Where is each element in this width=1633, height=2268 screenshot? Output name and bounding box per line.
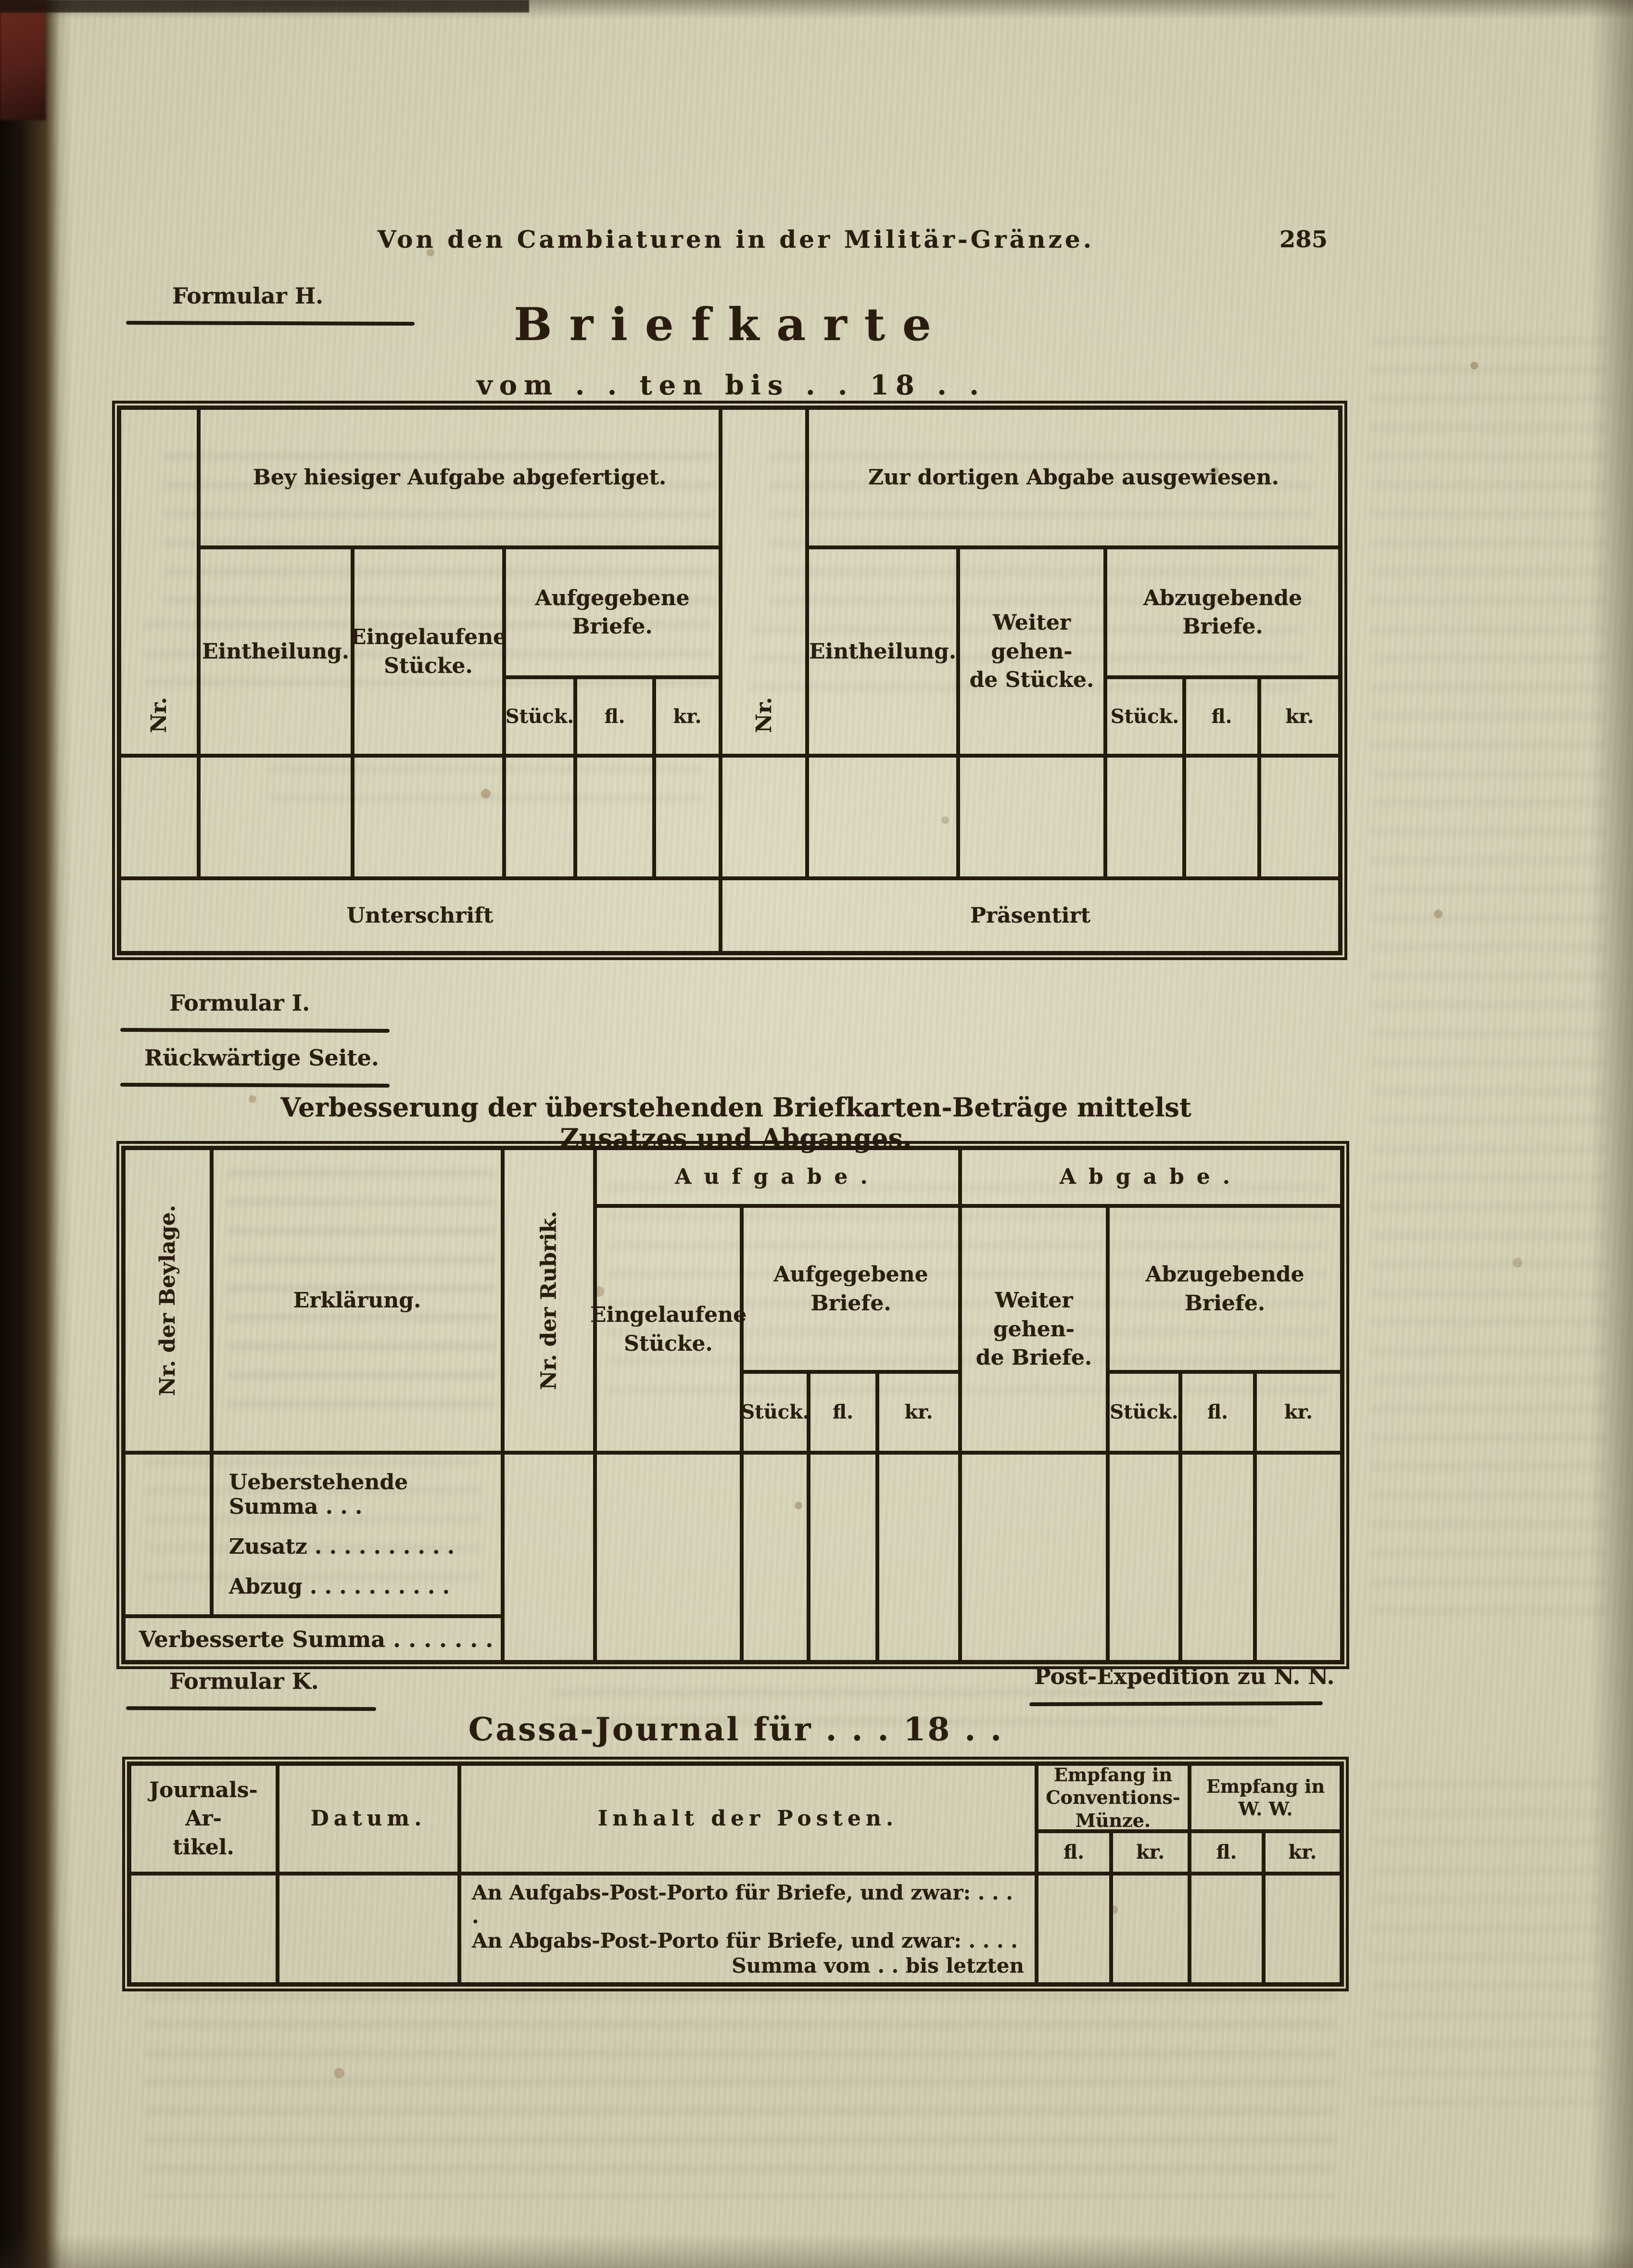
empty-cell (1186, 754, 1261, 876)
empty-cell (1110, 1614, 1182, 1660)
book-binding-edge (0, 0, 72, 2268)
group-header-aufgabe: Aufgabe. (597, 1150, 962, 1208)
subcol-stueck: Stück. (744, 1374, 810, 1451)
empty-cell (505, 1614, 597, 1660)
col-eingelaufene-stuecke: Eingelaufene Stücke. (354, 549, 506, 754)
subcol-stueck: Stück. (506, 679, 577, 754)
col-aufgegebene-briefe: Aufgegebene Briefe. (744, 1208, 962, 1374)
running-header: Von den Cambiaturen in der Militär-Gränz… (298, 225, 1174, 253)
empty-cell (1113, 1872, 1191, 1982)
col-weitergehende-briefe: Weiter gehen- de Briefe. (962, 1208, 1110, 1451)
scanned-book-page: Von den Cambiaturen in der Militär-Gränz… (0, 0, 1633, 2268)
col-weitergehende-stuecke: Weiter gehen- de Stücke. (960, 549, 1107, 754)
formular-i-label: Formular I. (169, 990, 310, 1016)
col-aufgegebene-briefe: Aufgegebene Briefe. (506, 549, 722, 679)
empty-cell (1261, 754, 1338, 876)
label-line: Münze. (1076, 1809, 1151, 1832)
empty-cell (126, 1451, 214, 1614)
col-nr-der-rubrik: Nr. der Rubrik. (505, 1150, 597, 1451)
group-header-abgabe: Abgabe. (962, 1150, 1340, 1208)
subcol-kr: kr. (1266, 1833, 1340, 1872)
briefkarte-title: Briefkarte (337, 298, 1126, 351)
post-expedition-underline (1029, 1701, 1323, 1706)
summen-rows: Ueberstehende Summa . . . Zusatz . . . .… (214, 1451, 505, 1614)
col-abzugebende-briefe: Abzugebende Briefe. (1107, 549, 1338, 679)
col-abzugebende-briefe: Abzugebende Briefe. (1110, 1208, 1340, 1374)
cassa-journal-title: Cassa-Journal für . . . 18 . . (332, 1711, 1140, 1748)
col-nr-right: Nr. (722, 410, 809, 754)
empty-cell (722, 754, 809, 876)
label-line: Empfang in (1054, 1763, 1172, 1787)
scan-top-shadow (0, 0, 1633, 19)
page-right-edge (1590, 0, 1633, 2268)
footer-unterschrift: Unterschrift (121, 876, 722, 951)
empty-cell (744, 1451, 810, 1614)
empty-cell (1107, 754, 1186, 876)
row-summa-vom: Summa vom . . bis letzten (732, 1954, 1024, 1977)
verbesserung-table: Nr. der Beylage. Erklärung. Nr. der Rubr… (116, 1141, 1349, 1669)
subcol-kr: kr. (879, 1374, 962, 1451)
empty-cell (577, 754, 656, 876)
col-eintheilung-right: Eintheilung. (809, 549, 960, 754)
footer-praesentirt: Präsentirt (722, 876, 1338, 951)
col-inhalt-der-posten: Inhalt der Posten. (461, 1766, 1038, 1872)
empty-cell (656, 754, 722, 876)
empty-cell (1182, 1451, 1257, 1614)
empty-cell (597, 1614, 744, 1660)
empty-cell (962, 1614, 1110, 1660)
col-empfang-ww: Empfang in W. W. (1191, 1766, 1340, 1833)
page-number: 285 (1279, 226, 1376, 253)
label-line: W. W. (1238, 1798, 1292, 1821)
label-line: de Briefe. (976, 1343, 1092, 1372)
empty-cell (1182, 1614, 1257, 1660)
empty-cell (597, 1451, 744, 1614)
bleedthrough-ghost (1371, 337, 1607, 1635)
label-line: Journals-Ar- (136, 1776, 271, 1833)
subcol-fl: fl. (810, 1374, 879, 1451)
empty-cell (1191, 1872, 1266, 1982)
empty-cell (1110, 1451, 1182, 1614)
row-verbesserte-summa: Verbesserte Summa . . . . . . . (126, 1614, 505, 1660)
formular-k-label: Formular K. (169, 1668, 319, 1694)
subcol-fl: fl. (1182, 1374, 1257, 1451)
col-journals-artikel: Journals-Ar- tikel. (131, 1766, 279, 1872)
subcol-kr: kr. (1113, 1833, 1191, 1872)
empty-cell (879, 1451, 962, 1614)
col-datum: Datum. (279, 1766, 461, 1872)
col-eingelaufene-stuecke: Eingelaufene Stücke. (597, 1208, 744, 1451)
empty-cell (960, 754, 1107, 876)
posten-rows: An Aufgabs-Post-Porto für Briefe, und zw… (461, 1872, 1038, 1982)
label-line: Weiter gehen- (965, 608, 1099, 666)
rueckwaertige-seite-label: Rückwärtige Seite. (144, 1045, 379, 1071)
empty-cell (131, 1872, 279, 1982)
empty-cell (810, 1614, 879, 1660)
subcol-fl: fl. (1186, 679, 1261, 754)
subcol-fl: fl. (577, 679, 656, 754)
col-empfang-conventions-muenze: Empfang in Conventions- Münze. (1038, 1766, 1191, 1833)
label-line: Conventions- (1046, 1786, 1180, 1809)
empty-cell (962, 1451, 1110, 1614)
empty-cell (201, 754, 354, 876)
col-nr-der-beylage: Nr. der Beylage. (126, 1150, 214, 1451)
subcol-fl: fl. (1191, 1833, 1266, 1872)
label-line: tikel. (173, 1833, 234, 1862)
row-ueberstehende-summa: Ueberstehende Summa . . . (229, 1470, 501, 1519)
empty-cell (1257, 1614, 1340, 1660)
empty-cell (1266, 1872, 1340, 1982)
empty-cell (505, 1451, 597, 1614)
subcol-stueck: Stück. (1107, 679, 1186, 754)
empty-cell (354, 754, 506, 876)
empty-cell (879, 1614, 962, 1660)
empty-cell (744, 1614, 810, 1660)
cassa-journal-table: Journals-Ar- tikel. Datum. Inhalt der Po… (122, 1757, 1349, 1991)
label-line: Empfang in (1206, 1775, 1325, 1798)
empty-cell (121, 754, 201, 876)
rueckwaertige-underline (120, 1083, 390, 1088)
group-header-abgabe: Zur dortigen Abgabe ausgewiesen. (809, 410, 1338, 549)
formular-i-underline (120, 1028, 390, 1033)
subcol-kr: kr. (656, 679, 722, 754)
subcol-fl: fl. (1038, 1833, 1113, 1872)
col-erklaerung: Erklärung. (214, 1150, 505, 1451)
col-nr-left: Nr. (121, 410, 201, 754)
subcol-kr: kr. (1261, 679, 1338, 754)
subcol-stueck: Stück. (1110, 1374, 1182, 1451)
briefkarte-table: Nr. Bey hiesiger Aufgabe abgefertiget. E… (112, 401, 1347, 960)
row-aufgabs-post-porto: An Aufgabs-Post-Porto für Briefe, und zw… (472, 1881, 1024, 1928)
page-bottom-edge (0, 2234, 1633, 2268)
formular-h-label: Formular H. (172, 283, 323, 309)
label-line: Weiter gehen- (967, 1286, 1101, 1343)
empty-cell (1038, 1872, 1113, 1982)
post-expedition-label: Post-Expedition zu N. N. (1034, 1663, 1335, 1689)
empty-cell (810, 1451, 879, 1614)
bleedthrough-ghost (1371, 1780, 1602, 2116)
row-abzug: Abzug . . . . . . . . . . (229, 1574, 450, 1599)
row-abgabs-post-porto: An Abgabs-Post-Porto für Briefe, und zwa… (472, 1929, 1018, 1952)
empty-cell (506, 754, 577, 876)
col-eintheilung-left: Eintheilung. (201, 549, 354, 754)
subcol-kr: kr. (1257, 1374, 1340, 1451)
row-zusatz: Zusatz . . . . . . . . . . (229, 1534, 455, 1559)
empty-cell (809, 754, 960, 876)
group-header-aufgabe: Bey hiesiger Aufgabe abgefertiget. (201, 410, 722, 549)
empty-cell (1257, 1451, 1340, 1614)
label-line: de Stücke. (970, 666, 1094, 694)
bleedthrough-ghost (144, 1991, 1337, 2198)
briefkarte-subtitle: vom . . ten bis . . 18 . . (337, 369, 1126, 401)
empty-cell (279, 1872, 461, 1982)
